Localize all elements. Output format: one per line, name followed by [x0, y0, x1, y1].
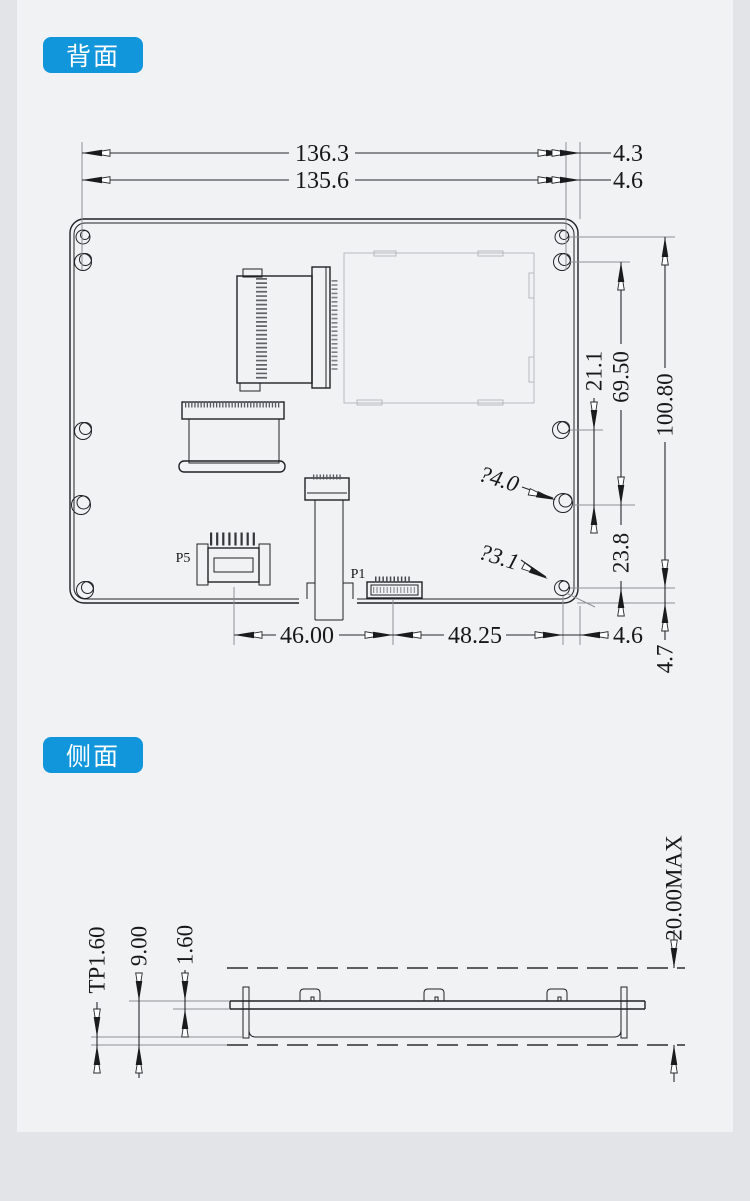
mounting-hole [555, 230, 569, 244]
back-view-drawing: P5 P1 [70, 141, 678, 673]
mounting-clip [300, 989, 320, 1001]
dim-hole-dia-small: ?3.1 [476, 539, 522, 575]
dim-bottom-right-offset: 4.6 [613, 623, 643, 649]
dim-right-offset-top: 4.3 [613, 141, 643, 167]
connector-p1-label: P1 [351, 567, 366, 582]
dim-bottom-edge-offset: 4.7 [653, 645, 678, 674]
dim-hole-gap-lower: 23.8 [609, 533, 634, 573]
technical-drawing: P5 P1 [17, 0, 750, 1201]
connector-p1: P1 [351, 567, 422, 598]
dim-panel-thickness: 1.60 [173, 925, 198, 965]
dim-hole-dia-large: ?4.0 [476, 461, 522, 497]
mounting-clip [424, 989, 444, 1001]
dim-right-offset: 4.6 [613, 168, 643, 194]
mounting-hole [554, 254, 571, 271]
mounting-clip [547, 989, 567, 1001]
dim-hole-span-mid: 69.50 [609, 351, 634, 403]
dim-module-thickness: 9.00 [127, 926, 152, 966]
content-card: 背面 侧面 [17, 0, 733, 1132]
fpc-tail [299, 477, 357, 620]
mounting-hole [75, 423, 92, 440]
display-area-outline [344, 251, 534, 405]
side-view-drawing: TP1.60 9.00 1.60 20.00MAX [85, 835, 687, 1082]
mounting-hole-dia-large [554, 494, 573, 513]
dim-board-width: 135.6 [295, 168, 349, 194]
connector-p5: P5 [176, 539, 270, 585]
mounting-holes-right [553, 230, 573, 596]
dim-max-thickness: 20.00MAX [662, 835, 687, 941]
fpc-connector-main [237, 267, 335, 391]
mounting-hole [76, 230, 90, 244]
mounting-hole [77, 582, 94, 599]
dim-p1-to-edge: 48.25 [448, 623, 502, 649]
dim-hole-gap: 21.1 [582, 351, 607, 391]
extension-lines [82, 142, 675, 645]
mounting-holes-left [72, 230, 94, 599]
side-extension-lines [91, 1001, 243, 1045]
dim-hole-span-full: 100.80 [653, 373, 678, 436]
dim-p5-to-p1: 46.00 [280, 623, 334, 649]
mounting-hole [75, 254, 92, 271]
dim-tp-thickness: TP1.60 [85, 926, 110, 993]
max-envelope-lines [227, 968, 685, 1045]
dim-total-width: 136.3 [295, 141, 349, 167]
ffc-connector [179, 402, 285, 472]
connector-p5-label: P5 [176, 551, 191, 566]
mounting-hole [553, 422, 570, 439]
dimension-arrowheads [82, 150, 677, 1073]
module-cross-section [230, 987, 645, 1038]
